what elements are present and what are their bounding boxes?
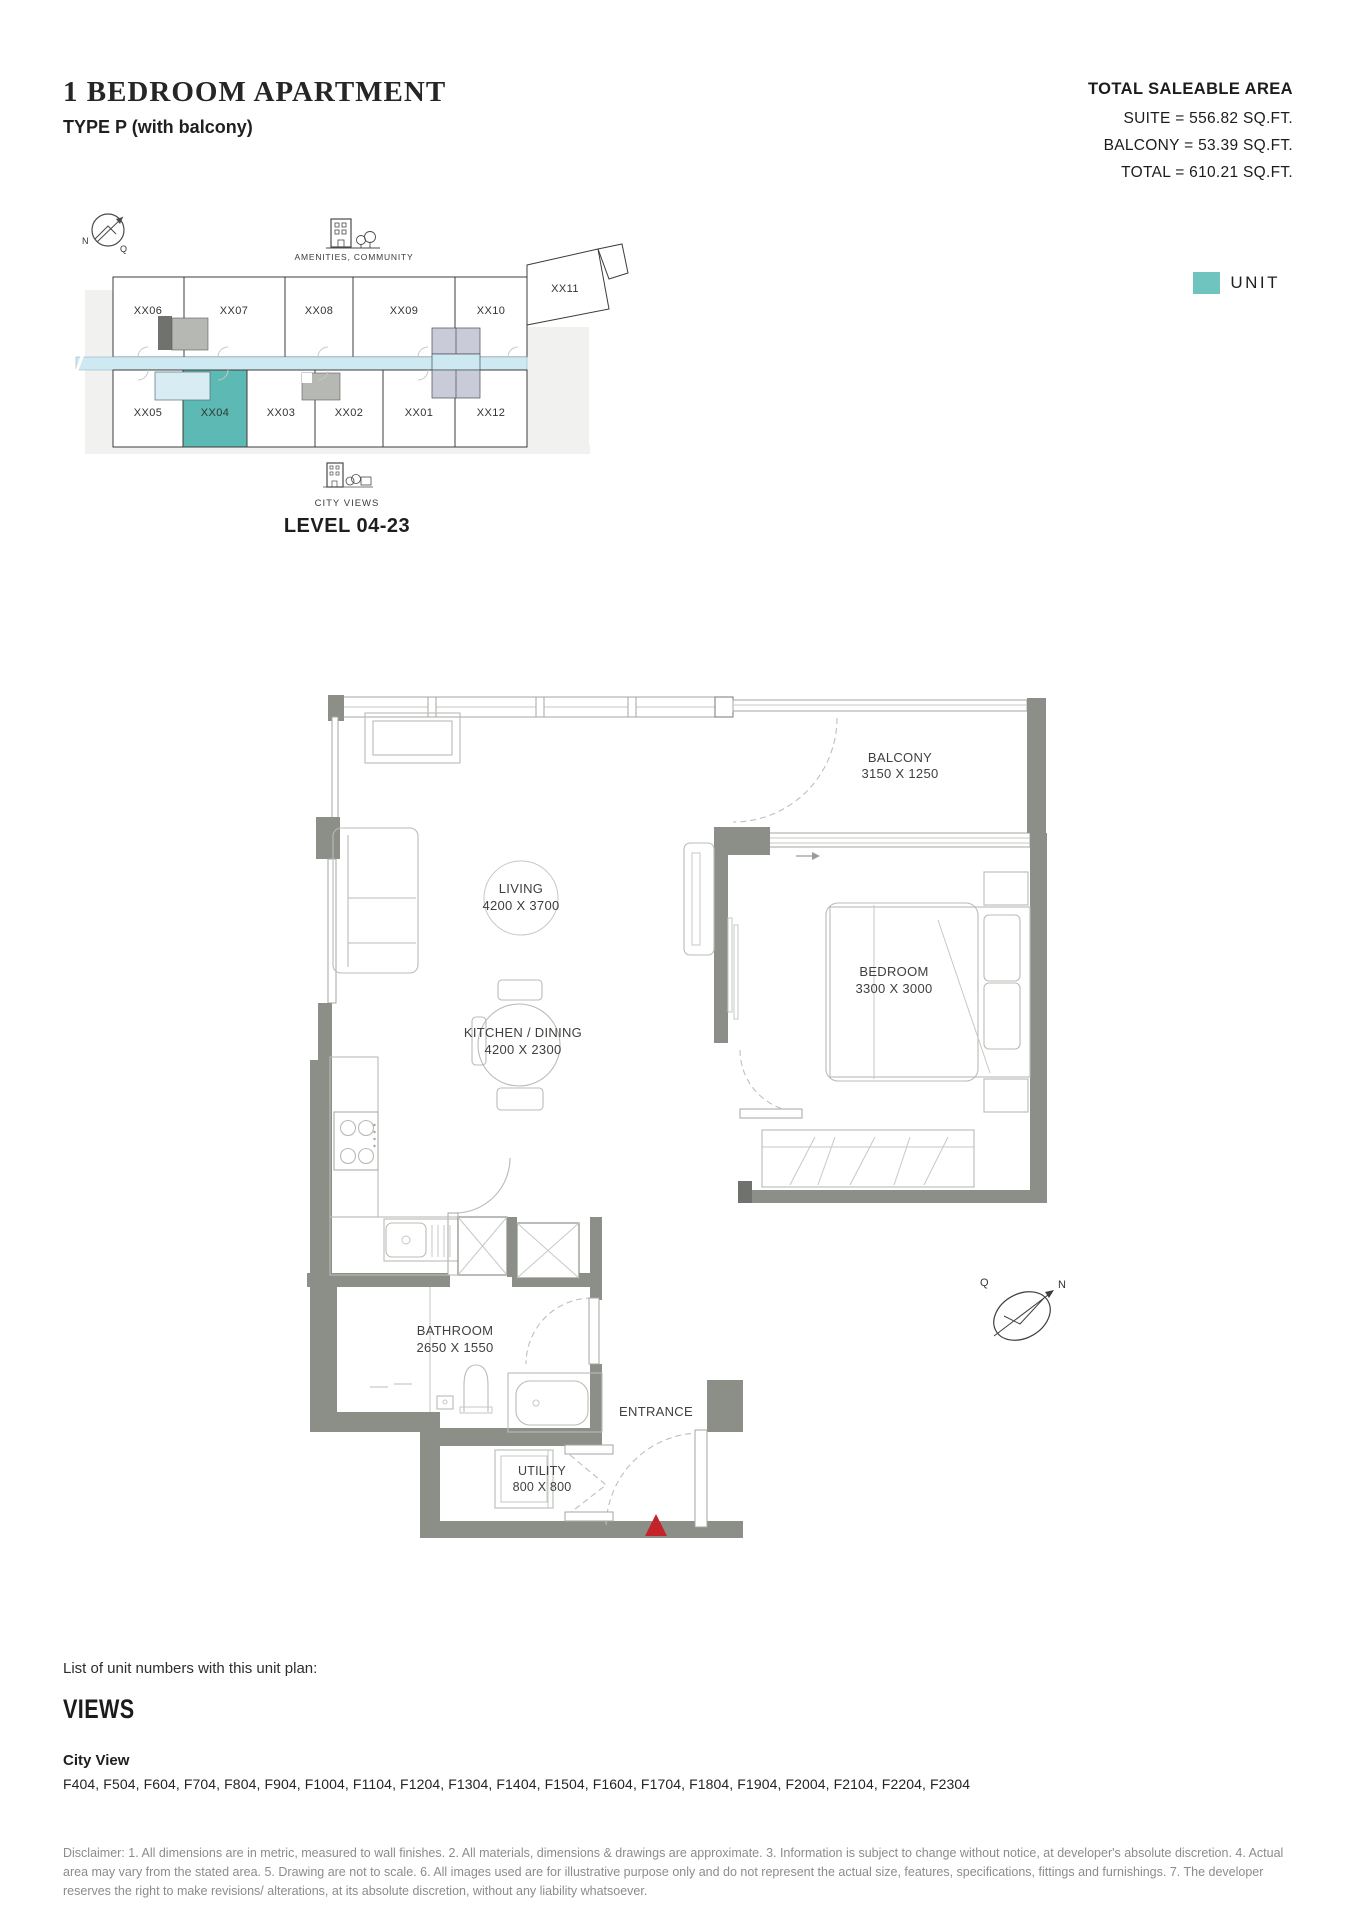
floorplan-page: 1 BEDROOM APARTMENT TYPE P (with balcony… (0, 0, 1357, 1920)
unit-legend: UNIT (1193, 272, 1280, 294)
keyplan-right-band (527, 327, 589, 445)
keyplan-unit-xx03: XX03 (267, 407, 296, 419)
compass-bottom-right: N Q (968, 1256, 1072, 1360)
bathroom-dims: 2650 X 1550 (416, 1340, 493, 1355)
area-balcony: BALCONY = 53.39 SQ.FT. (1088, 132, 1293, 159)
keyplan-unit-xx11: XX11 (551, 283, 579, 295)
living-dims: 4200 X 3700 (482, 898, 559, 913)
drainboard (432, 1225, 450, 1257)
compass-n-label: N (82, 236, 89, 246)
living-label: LIVING (499, 881, 543, 896)
city-views-label: CITY VIEWS (267, 498, 427, 509)
sink-unit (384, 1219, 458, 1261)
unit-numbers-list: F404, F504, F604, F704, F804, F904, F100… (63, 1776, 1303, 1792)
keyplan-core-light (172, 318, 208, 350)
keyplan-stair-notch (302, 373, 312, 383)
area-suite: SUITE = 556.82 SQ.FT. (1088, 105, 1293, 132)
appliance-shafts (458, 1217, 579, 1278)
utility-jamb-top (565, 1445, 613, 1454)
balcony-dims: 3150 X 1250 (861, 766, 938, 781)
compass-br-icon: N Q (968, 1256, 1072, 1360)
bedroom-dims: 3300 X 3000 (855, 981, 932, 996)
keyplan-core-dark (158, 316, 172, 350)
keyplan-unit-xx08: XX08 (305, 305, 334, 317)
basin (437, 1396, 453, 1409)
compass-br-q: Q (980, 1277, 989, 1289)
wardrobe (762, 1130, 974, 1187)
keyplan-unit-xx07: XX07 (220, 305, 249, 317)
view-type-label: City View (63, 1752, 129, 1769)
views-heading: VIEWS (63, 1694, 135, 1725)
kitchen-counter (330, 1057, 458, 1275)
console-unit (684, 843, 714, 955)
unit-type-subtitle: TYPE P (with balcony) (63, 117, 253, 138)
utility-bifold-door (570, 1455, 606, 1513)
amenities-label: AMENITIES, COMMUNITY (295, 252, 414, 262)
disclaimer-text: Disclaimer: 1. All dimensions are in met… (63, 1844, 1303, 1900)
saleable-area-block: TOTAL SALEABLE AREA SUITE = 556.82 SQ.FT… (1088, 80, 1293, 186)
balcony-door-arc (733, 718, 837, 822)
unit-list-intro: List of unit numbers with this unit plan… (63, 1660, 317, 1677)
bedroom-door-arc (740, 1050, 802, 1112)
bathroom-door-arc (526, 1298, 592, 1364)
sliding-panels (728, 918, 738, 1019)
nightstand-bottom (984, 1079, 1028, 1112)
area-total: TOTAL = 610.21 SQ.FT. (1088, 159, 1293, 186)
bathroom-label: BATHROOM (417, 1323, 494, 1338)
kitchen-label: KITCHEN / DINING (464, 1025, 582, 1040)
tv-cabinet (365, 713, 460, 763)
keyplan-lobby-box (155, 372, 210, 400)
bathroom-fixtures (370, 1287, 602, 1432)
keyplan-unit-xx01: XX01 (405, 407, 434, 419)
toilet (464, 1365, 488, 1412)
niche-door-arc (455, 1158, 510, 1213)
city-views-icon (319, 461, 375, 491)
balcony-sliding-track (768, 833, 1030, 860)
entrance-door-jamb (695, 1430, 707, 1527)
utility-unit (495, 1450, 553, 1508)
sink-bowl (386, 1223, 426, 1257)
amenities-icon (326, 219, 380, 248)
bedroom-label: BEDROOM (859, 964, 928, 979)
entrance-label: ENTRANCE (619, 1404, 693, 1419)
key-plan-svg: N Q AMENITIES, COMMUNITY (68, 195, 648, 457)
keyplan-unit-xx12: XX12 (477, 407, 506, 419)
area-heading: TOTAL SALEABLE AREA (1088, 80, 1293, 99)
compass-q-label: Q (120, 244, 127, 254)
bathroom-door-leaf (589, 1298, 599, 1364)
utility-dims: 800 X 800 (513, 1480, 572, 1494)
entrance-door-arc (606, 1433, 701, 1528)
bathtub (516, 1381, 588, 1425)
bedroom-door-leaf (740, 1109, 802, 1118)
balcony-label: BALCONY (868, 750, 932, 765)
compass-icon: N Q (82, 214, 127, 254)
keyplan-lift-lobby (432, 354, 480, 370)
window-band (335, 697, 1027, 717)
page-title: 1 BEDROOM APARTMENT (63, 76, 446, 109)
keyplan-unit-xx10: XX10 (477, 305, 506, 317)
compass-br-n: N (1058, 1279, 1066, 1291)
unit-legend-label: UNIT (1230, 273, 1280, 293)
utility-jamb-bottom (565, 1512, 613, 1521)
keyplan-unit-xx06: XX06 (134, 305, 163, 317)
floor-plan: BALCONY 3150 X 1250 LIVING 4200 X 3700 K… (290, 685, 1060, 1555)
sofa (333, 828, 418, 973)
kitchen-dims: 4200 X 2300 (484, 1042, 561, 1057)
unit-swatch-icon (1193, 272, 1220, 294)
slide-arrow-icon (812, 852, 820, 860)
keyplan-unit-xx04: XX04 (201, 407, 230, 419)
keyplan-unit-xx09: XX09 (390, 305, 419, 317)
keyplan-unit-xx02: XX02 (335, 407, 364, 419)
utility-label: UTILITY (518, 1464, 566, 1478)
nightstand-top (984, 872, 1028, 905)
keyplan-unit-xx05: XX05 (134, 407, 163, 419)
key-plan: N Q AMENITIES, COMMUNITY (68, 195, 648, 555)
floor-plan-svg: BALCONY 3150 X 1250 LIVING 4200 X 3700 K… (290, 685, 1060, 1555)
level-label: LEVEL 04-23 (257, 515, 437, 538)
city-views-block: CITY VIEWS (267, 461, 427, 509)
